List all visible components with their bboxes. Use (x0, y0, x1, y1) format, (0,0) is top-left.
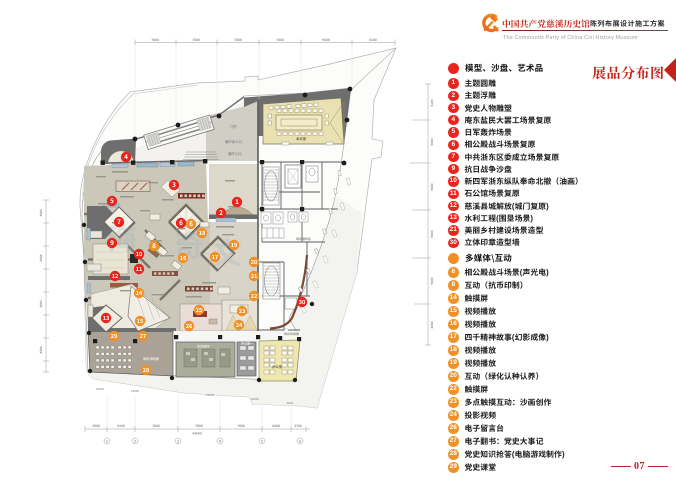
svg-text:7800: 7800 (151, 37, 159, 42)
svg-text:9600: 9600 (430, 230, 434, 237)
svg-text:11: 11 (136, 265, 143, 273)
svg-text:6: 6 (179, 218, 183, 227)
svg-text:14: 14 (136, 289, 143, 297)
svg-text:15600: 15600 (206, 393, 215, 397)
svg-text:7800: 7800 (192, 37, 200, 42)
svg-text:展厅入口: 展厅入口 (228, 151, 242, 156)
svg-text:3900: 3900 (92, 423, 100, 428)
svg-text:5: 5 (261, 438, 263, 443)
svg-text:9600: 9600 (430, 183, 434, 190)
svg-text:7800: 7800 (237, 423, 245, 428)
svg-text:23: 23 (239, 307, 246, 315)
svg-text:6: 6 (299, 438, 301, 443)
svg-text:党史活动室: 党史活动室 (143, 356, 160, 361)
svg-text:9600: 9600 (430, 138, 434, 145)
svg-text:25: 25 (196, 306, 203, 314)
svg-text:44600: 44600 (192, 431, 202, 436)
svg-text:5400: 5400 (272, 423, 280, 428)
svg-text:9000: 9000 (287, 401, 294, 405)
svg-text:7800: 7800 (276, 37, 284, 42)
svg-text:30: 30 (299, 298, 306, 306)
svg-text:8100: 8100 (430, 99, 434, 106)
svg-text:29: 29 (111, 332, 118, 340)
svg-text:展厅出入口: 展厅出入口 (225, 139, 243, 144)
svg-text:9: 9 (110, 238, 114, 247)
svg-text:12: 12 (112, 272, 119, 280)
svg-text:8100: 8100 (369, 37, 377, 42)
svg-text:15600: 15600 (96, 387, 105, 391)
svg-text:4: 4 (124, 152, 128, 161)
svg-text:27: 27 (140, 332, 147, 340)
svg-text:3: 3 (172, 180, 176, 189)
svg-text:15: 15 (137, 317, 144, 325)
svg-text:21: 21 (251, 272, 258, 280)
svg-text:4500: 4500 (39, 209, 43, 216)
svg-text:4500: 4500 (39, 346, 43, 353)
svg-text:19: 19 (231, 241, 238, 249)
svg-text:5100: 5100 (117, 423, 125, 428)
svg-text:7: 7 (117, 217, 121, 226)
svg-text:24: 24 (236, 321, 243, 329)
svg-text:办公室: 办公室 (272, 364, 283, 369)
svg-text:观众休息廊: 观众休息廊 (284, 332, 299, 336)
svg-text:门厅: 门厅 (230, 124, 237, 129)
svg-text:7800: 7800 (234, 37, 242, 42)
svg-text:2700: 2700 (294, 423, 302, 428)
svg-text:17: 17 (212, 253, 219, 261)
svg-text:1: 1 (235, 197, 239, 206)
svg-text:2: 2 (219, 208, 223, 217)
svg-text:5: 5 (110, 196, 114, 205)
svg-text:20: 20 (251, 258, 258, 266)
svg-text:观众服务区: 观众服务区 (296, 237, 311, 241)
svg-text:4500: 4500 (39, 254, 43, 261)
svg-text:7800: 7800 (152, 423, 160, 428)
svg-text:1: 1 (106, 438, 108, 443)
svg-text:8400: 8400 (430, 321, 434, 328)
svg-text:26: 26 (186, 322, 193, 330)
svg-text:3: 3 (177, 438, 179, 443)
svg-text:多功能厅: 多功能厅 (197, 344, 211, 349)
svg-text:10: 10 (136, 250, 143, 258)
svg-text:7800: 7800 (195, 423, 203, 428)
svg-text:15600: 15600 (251, 397, 260, 401)
svg-text:会议室: 会议室 (296, 136, 307, 141)
svg-text:22: 22 (251, 292, 258, 300)
svg-text:28: 28 (143, 366, 150, 374)
svg-text:8: 8 (152, 241, 156, 250)
svg-text:18: 18 (199, 229, 206, 237)
svg-text:4500: 4500 (39, 300, 43, 307)
svg-text:6: 6 (189, 219, 193, 228)
svg-text:9600: 9600 (430, 277, 434, 284)
svg-text:4: 4 (219, 438, 221, 443)
svg-text:15600: 15600 (131, 389, 140, 393)
svg-text:9600: 9600 (322, 37, 330, 42)
svg-text:16: 16 (180, 254, 187, 262)
svg-text:文: 文 (212, 229, 242, 273)
svg-text:办公室一: 办公室一 (241, 342, 253, 346)
svg-text:2: 2 (134, 438, 136, 443)
svg-text:13: 13 (103, 314, 110, 322)
